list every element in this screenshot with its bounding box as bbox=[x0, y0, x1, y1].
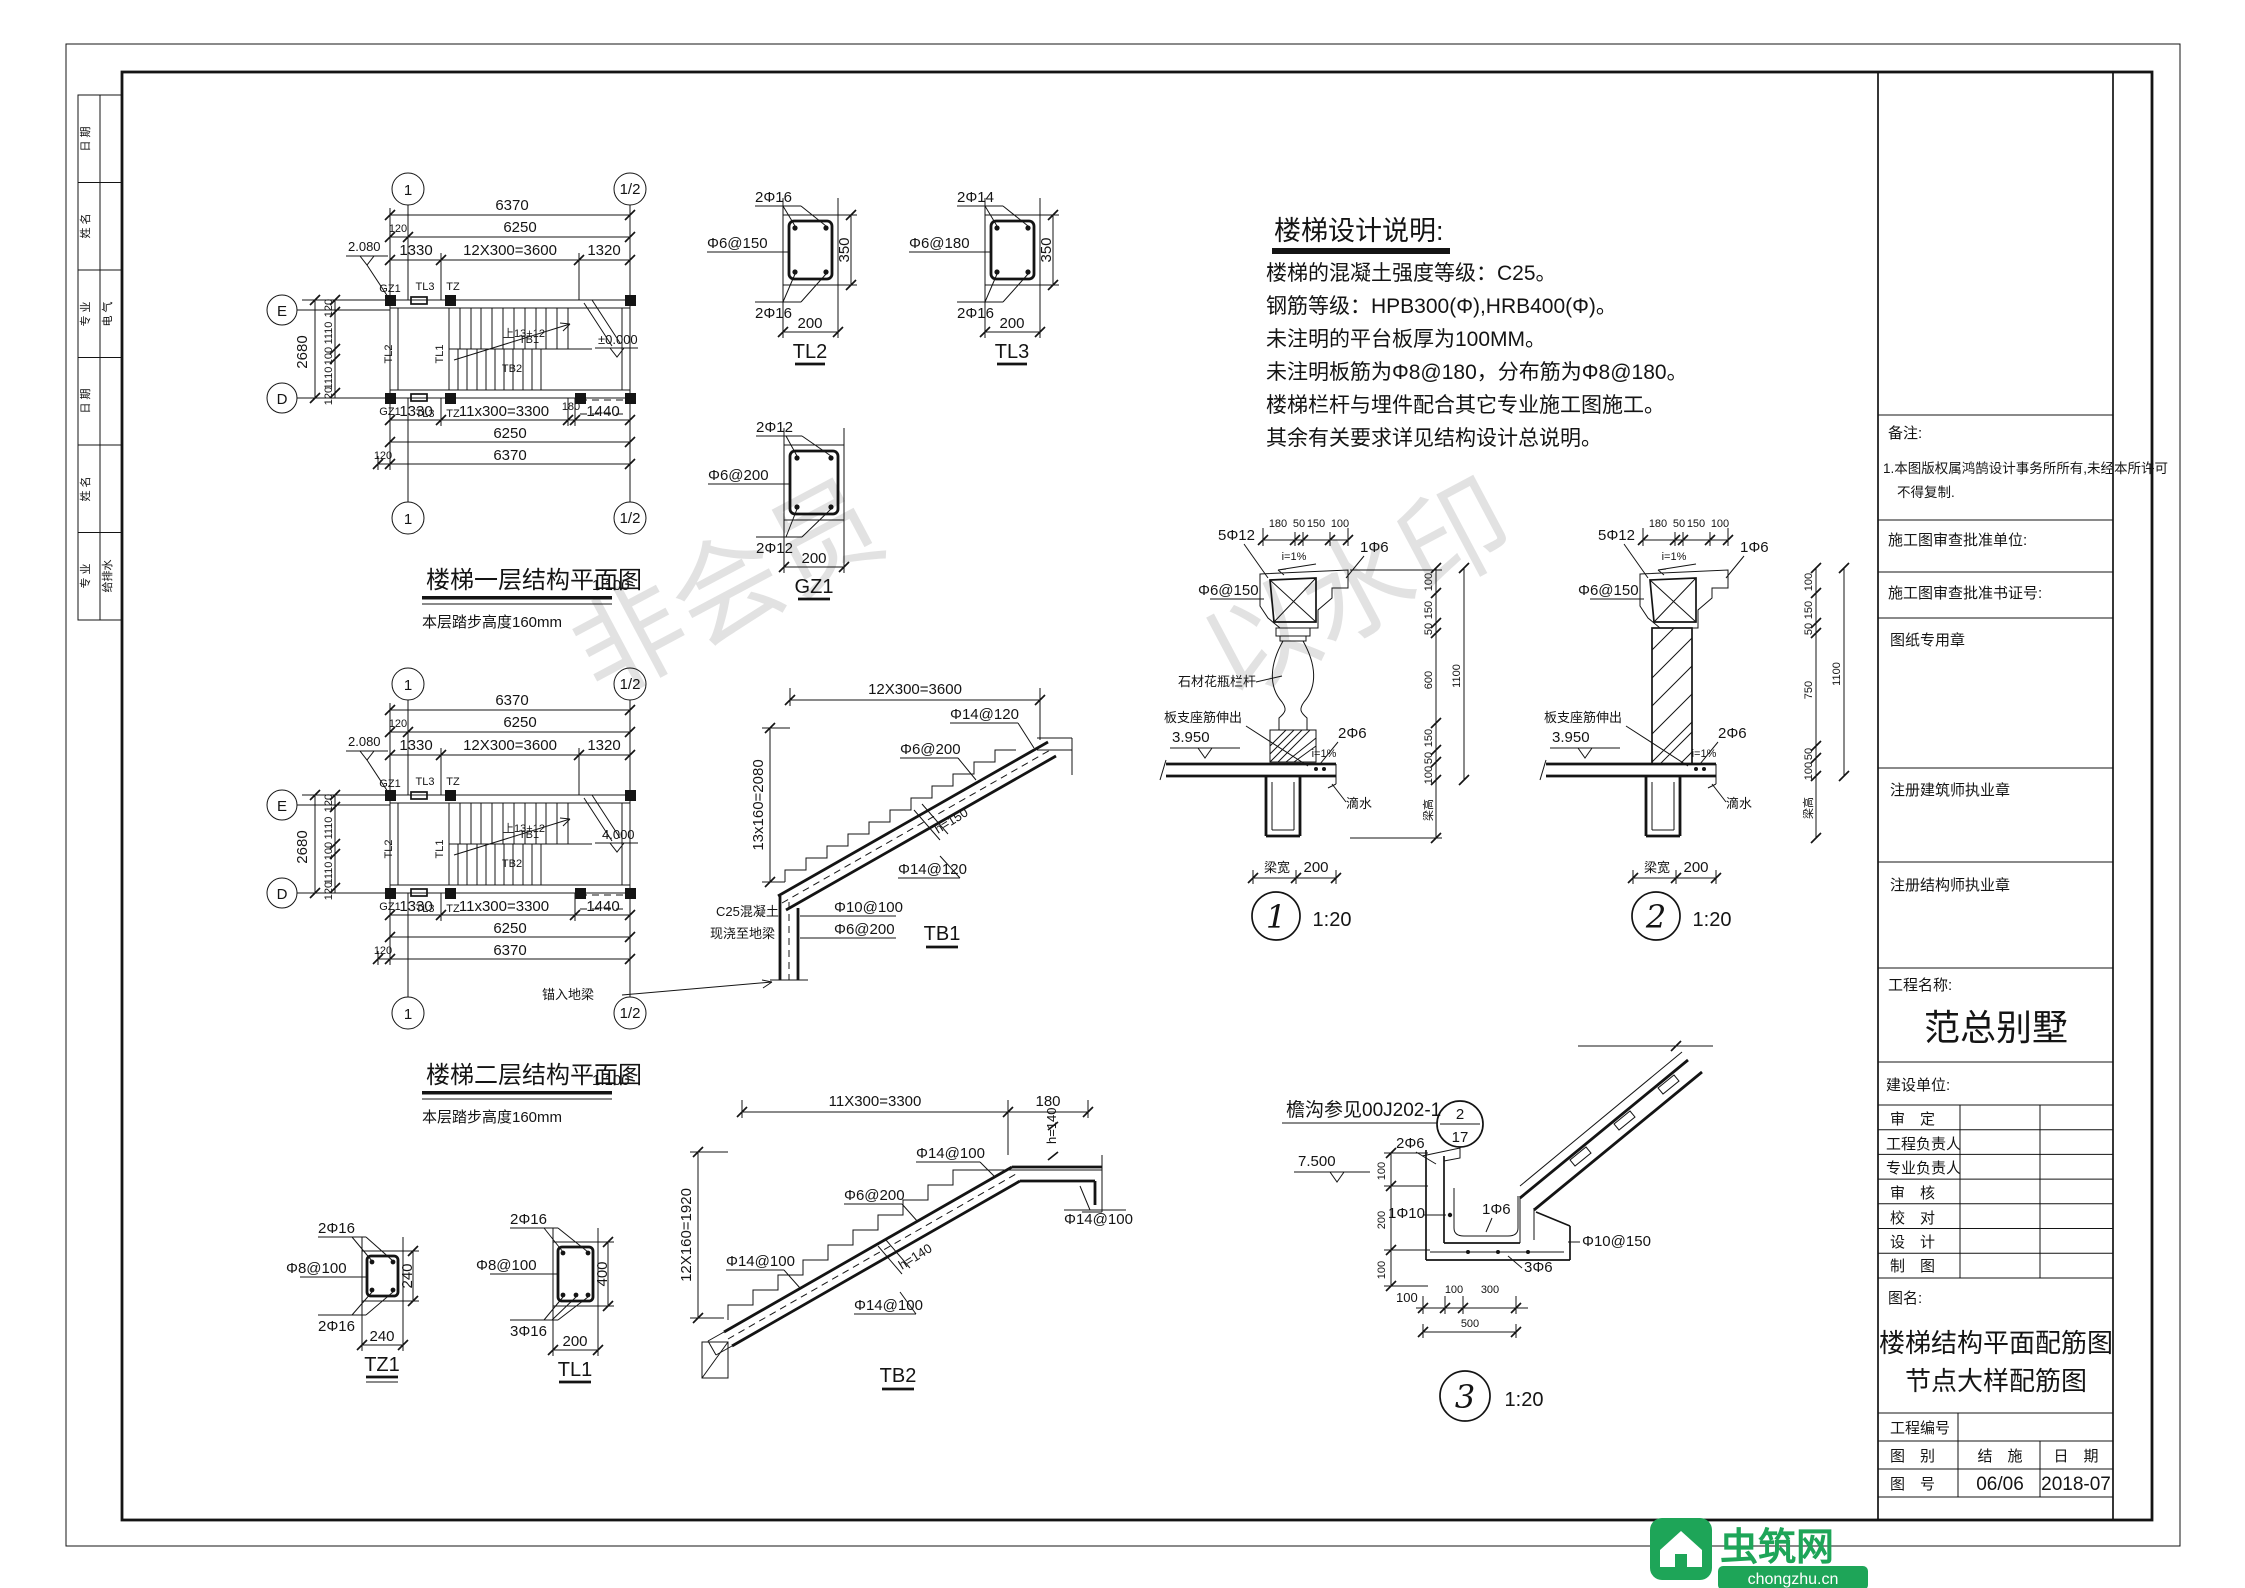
svg-text:50: 50 bbox=[1423, 752, 1435, 764]
svg-text:50: 50 bbox=[1803, 748, 1815, 760]
svg-text:注册结构师执业章: 注册结构师执业章 bbox=[1890, 876, 2010, 894]
svg-text:2680: 2680 bbox=[294, 335, 311, 368]
svg-text:120: 120 bbox=[323, 299, 335, 317]
svg-text:1110: 1110 bbox=[323, 367, 335, 390]
svg-text:TL3: TL3 bbox=[416, 776, 435, 788]
svg-text:设 计: 设 计 bbox=[1890, 1234, 1935, 1251]
svg-text:100: 100 bbox=[1423, 573, 1435, 591]
svg-text:2Φ16: 2Φ16 bbox=[755, 189, 792, 206]
svg-text:5Φ12: 5Φ12 bbox=[1598, 527, 1635, 544]
svg-text:1330: 1330 bbox=[399, 403, 432, 420]
level-mark: 4.000 bbox=[602, 827, 635, 842]
svg-text:1/2: 1/2 bbox=[620, 676, 641, 693]
svg-text:Φ14@100: Φ14@100 bbox=[1064, 1211, 1133, 1228]
svg-text:D: D bbox=[277, 886, 288, 903]
svg-text:2Φ6: 2Φ6 bbox=[1396, 1135, 1425, 1152]
svg-text:Φ14@120: Φ14@120 bbox=[950, 706, 1019, 723]
svg-text:100: 100 bbox=[1445, 1284, 1463, 1296]
svg-text:12X160=1920: 12X160=1920 bbox=[678, 1188, 695, 1282]
svg-text:2Φ6: 2Φ6 bbox=[1338, 725, 1367, 742]
drawing-sheet: 非会员 以水印 日 期 姓 名 专 业 电 气 日 期 姓 名 专 业 给排水 … bbox=[0, 0, 2245, 1588]
svg-text:2Φ6: 2Φ6 bbox=[1718, 725, 1747, 742]
svg-text:2Φ16: 2Φ16 bbox=[510, 1211, 547, 1228]
svg-text:600: 600 bbox=[1423, 671, 1435, 689]
svg-text:1330: 1330 bbox=[399, 242, 432, 259]
svg-text:梁高: 梁高 bbox=[1801, 797, 1815, 819]
left-signature-strip: 日 期 姓 名 专 业 电 气 日 期 姓 名 专 业 给排水 bbox=[78, 95, 122, 620]
svg-text:6370: 6370 bbox=[495, 692, 528, 709]
svg-text:楼梯栏杆与埋件配合其它专业施工图施工。: 楼梯栏杆与埋件配合其它专业施工图施工。 bbox=[1266, 394, 1665, 417]
svg-text:1: 1 bbox=[404, 677, 412, 694]
svg-text:Φ6@200: Φ6@200 bbox=[844, 1187, 905, 1204]
svg-text:6370: 6370 bbox=[493, 942, 526, 959]
svg-text:200: 200 bbox=[1303, 859, 1328, 876]
svg-text:11x300=3300: 11x300=3300 bbox=[459, 898, 549, 915]
svg-text:1Φ6: 1Φ6 bbox=[1482, 1201, 1511, 1218]
figure-name-label: 图名: bbox=[1888, 1290, 1922, 1307]
svg-text:1320: 1320 bbox=[587, 242, 620, 259]
svg-text:1100: 1100 bbox=[1831, 662, 1843, 686]
svg-text:120: 120 bbox=[374, 450, 392, 462]
svg-text:TL2: TL2 bbox=[383, 345, 395, 364]
figure-name-1: 楼梯结构平面配筋图 bbox=[1879, 1328, 2113, 1358]
title-block: 备注: 1.本图版权属鸿鹄设计事务所所有,未经本所许可 不得复制. 施工图审查批… bbox=[1878, 415, 2168, 1497]
svg-text:审 核: 审 核 bbox=[1890, 1185, 1935, 1202]
plan-subtitle: 本层踏步高度160mm bbox=[422, 614, 562, 631]
svg-text:审 定: 审 定 bbox=[1890, 1111, 1935, 1128]
svg-text:100: 100 bbox=[323, 347, 335, 365]
svg-text:Φ8@100: Φ8@100 bbox=[476, 1257, 537, 1274]
detail-number: 2 bbox=[1645, 898, 1666, 936]
svg-text:6250: 6250 bbox=[493, 425, 526, 442]
svg-text:施工图审查批准书证号:: 施工图审查批准书证号: bbox=[1888, 585, 2042, 602]
svg-text:2Φ12: 2Φ12 bbox=[756, 419, 793, 436]
svg-text:180: 180 bbox=[1269, 518, 1287, 530]
svg-text:1.本图版权属鸿鹄设计事务所所有,未经本所许可: 1.本图版权属鸿鹄设计事务所所有,未经本所许可 bbox=[1883, 460, 2168, 476]
svg-text:E: E bbox=[277, 303, 287, 320]
svg-text:板支座筋伸出: 板支座筋伸出 bbox=[1544, 710, 1622, 725]
detail-number: 1 bbox=[1266, 898, 1286, 936]
section-tl3: 2Φ14 Φ6@180 350 2Φ16 200 TL3 bbox=[909, 189, 1059, 364]
svg-text:Φ6@150: Φ6@150 bbox=[707, 235, 768, 252]
svg-text:200: 200 bbox=[1683, 859, 1708, 876]
section-tl2: 2Φ16 Φ6@150 350 2Φ16 200 TL2 bbox=[707, 189, 857, 364]
svg-text:2Φ16: 2Φ16 bbox=[755, 305, 792, 322]
svg-text:1:20: 1:20 bbox=[1313, 909, 1352, 931]
svg-text:100: 100 bbox=[1331, 518, 1349, 530]
notes-title: 楼梯设计说明: bbox=[1274, 216, 1444, 246]
svg-text:1330: 1330 bbox=[399, 737, 432, 754]
logo-site-url: chongzhu.cn bbox=[1748, 1571, 1839, 1588]
elevation-mark: 2.080 bbox=[348, 239, 381, 254]
remark-label: 备注: bbox=[1888, 425, 1922, 442]
chongzhu-watermark-logo: 虫筑网 chongzhu.cn bbox=[1650, 1518, 1868, 1588]
logo-site-name: 虫筑网 bbox=[1720, 1527, 1834, 1569]
svg-text:500: 500 bbox=[1461, 1318, 1479, 1330]
svg-text:50: 50 bbox=[1293, 518, 1305, 530]
svg-text:Φ10@150: Φ10@150 bbox=[1582, 1233, 1651, 1250]
section-tz1: 2Φ16 Φ8@100 240 2Φ16 240 TZ1 bbox=[286, 1220, 419, 1382]
svg-text:TB1: TB1 bbox=[519, 829, 539, 841]
svg-text:TB2: TB2 bbox=[502, 858, 522, 870]
svg-text:工程编号: 工程编号 bbox=[1890, 1420, 1950, 1437]
svg-text:150: 150 bbox=[1687, 518, 1705, 530]
svg-text:200: 200 bbox=[562, 1333, 587, 1350]
svg-text:200: 200 bbox=[801, 550, 826, 567]
svg-text:1:100: 1:100 bbox=[592, 577, 630, 594]
svg-text:6250: 6250 bbox=[503, 219, 536, 236]
svg-text:TL2: TL2 bbox=[383, 840, 395, 859]
svg-text:50: 50 bbox=[1423, 623, 1435, 635]
svg-text:100: 100 bbox=[1376, 1162, 1388, 1180]
svg-text:现浇至地梁: 现浇至地梁 bbox=[710, 926, 775, 941]
svg-text:1110: 1110 bbox=[323, 862, 335, 885]
svg-text:日 期: 日 期 bbox=[79, 388, 92, 413]
svg-text:100: 100 bbox=[1803, 573, 1815, 591]
svg-text:120: 120 bbox=[323, 882, 335, 900]
section-name: TL1 bbox=[558, 1359, 592, 1381]
svg-text:锚入地梁: 锚入地梁 bbox=[542, 987, 594, 1002]
svg-text:E: E bbox=[277, 798, 287, 815]
svg-text:结 施: 结 施 bbox=[1977, 1448, 2022, 1465]
svg-text:3Φ6: 3Φ6 bbox=[1524, 1259, 1553, 1276]
level-mark: ±0.000 bbox=[598, 332, 638, 347]
svg-text:C25混凝土: C25混凝土 bbox=[716, 904, 779, 919]
svg-text:Φ6@150: Φ6@150 bbox=[1198, 582, 1259, 599]
svg-text:注册建筑师执业章: 注册建筑师执业章 bbox=[1890, 781, 2010, 799]
svg-text:100: 100 bbox=[1396, 1290, 1418, 1305]
svg-text:GZ1: GZ1 bbox=[379, 283, 400, 295]
svg-text:日 期: 日 期 bbox=[2053, 1448, 2098, 1465]
svg-text:工程负责人: 工程负责人 bbox=[1886, 1136, 1961, 1153]
svg-text:i=1%: i=1% bbox=[1692, 748, 1717, 760]
svg-text:日 期: 日 期 bbox=[79, 126, 92, 151]
svg-text:1: 1 bbox=[404, 511, 412, 528]
svg-text:120: 120 bbox=[323, 387, 335, 405]
svg-text:120: 120 bbox=[389, 223, 407, 235]
svg-text:Φ6@200: Φ6@200 bbox=[834, 921, 895, 938]
svg-text:120: 120 bbox=[323, 794, 335, 812]
stair-design-notes: 楼梯设计说明: 楼梯的混凝土强度等级：C25。 钢筋等级：HPB300(Φ),H… bbox=[1266, 216, 1688, 450]
svg-text:滴水: 滴水 bbox=[1346, 796, 1372, 811]
gutter-ref: 檐沟参见00J202-1 bbox=[1286, 1099, 1441, 1121]
svg-text:未注明的平台板厚为100MM。: 未注明的平台板厚为100MM。 bbox=[1266, 328, 1546, 351]
figure-name-2: 节点大样配筋图 bbox=[1905, 1366, 2087, 1396]
svg-text:400: 400 bbox=[594, 1261, 611, 1286]
svg-text:2Φ14: 2Φ14 bbox=[957, 189, 994, 206]
svg-text:180: 180 bbox=[1649, 518, 1667, 530]
svg-text:1/2: 1/2 bbox=[620, 1005, 641, 1022]
svg-text:1: 1 bbox=[404, 1006, 412, 1023]
svg-text:Φ6@200: Φ6@200 bbox=[708, 467, 769, 484]
section-name: TL2 bbox=[793, 341, 827, 363]
svg-text:图 号: 图 号 bbox=[1890, 1476, 1935, 1493]
svg-text:Φ8@100: Φ8@100 bbox=[286, 1260, 347, 1277]
svg-text:图纸专用章: 图纸专用章 bbox=[1890, 631, 1965, 649]
svg-text:1320: 1320 bbox=[587, 737, 620, 754]
svg-text:专业负责人: 专业负责人 bbox=[1886, 1160, 1961, 1177]
svg-text:6370: 6370 bbox=[495, 197, 528, 214]
svg-text:TB2: TB2 bbox=[502, 363, 522, 375]
svg-text:给排水: 给排水 bbox=[100, 560, 114, 593]
svg-text:GZ1: GZ1 bbox=[379, 778, 400, 790]
svg-text:不得复制.: 不得复制. bbox=[1897, 484, 1955, 500]
svg-text:TZ: TZ bbox=[446, 776, 460, 788]
svg-text:1Φ6: 1Φ6 bbox=[1360, 539, 1389, 556]
svg-text:1/2: 1/2 bbox=[620, 181, 641, 198]
plan-subtitle: 本层踏步高度160mm bbox=[422, 1109, 562, 1126]
plan-second-floor: 1 1/2 E D 1 1/2 6370 120 6250 1330 12X30… bbox=[267, 668, 646, 1126]
svg-text:D: D bbox=[277, 391, 288, 408]
svg-text:Φ14@100: Φ14@100 bbox=[916, 1145, 985, 1162]
svg-text:TZ: TZ bbox=[446, 281, 460, 293]
svg-text:100: 100 bbox=[1423, 766, 1435, 784]
watermark: 非会员 以水印 bbox=[554, 458, 1533, 722]
svg-text:6370: 6370 bbox=[493, 447, 526, 464]
project-name: 范总别墅 bbox=[1924, 1007, 2068, 1048]
svg-text:1:20: 1:20 bbox=[1693, 909, 1732, 931]
svg-text:图 别: 图 别 bbox=[1890, 1448, 1935, 1465]
sheet-number: 06/06 bbox=[1976, 1474, 2024, 1495]
detail-name: TB1 bbox=[924, 923, 961, 945]
svg-text:姓 名: 姓 名 bbox=[78, 213, 92, 238]
svg-text:建设单位:: 建设单位: bbox=[1886, 1077, 1950, 1094]
svg-text:6250: 6250 bbox=[493, 920, 526, 937]
svg-text:Φ6@150: Φ6@150 bbox=[1578, 582, 1639, 599]
svg-text:i=1%: i=1% bbox=[1282, 551, 1307, 563]
svg-text:2Φ12: 2Φ12 bbox=[756, 540, 793, 557]
svg-text:150: 150 bbox=[1423, 729, 1435, 747]
detail-tb2: 11X300=3300 180 h=140 12X160=1920 Φ14@10… bbox=[678, 1093, 1133, 1389]
svg-text:专 业: 专 业 bbox=[78, 301, 92, 326]
svg-text:滴水: 滴水 bbox=[1726, 796, 1752, 811]
svg-text:11x300=3300: 11x300=3300 bbox=[459, 403, 549, 420]
svg-text:Φ14@100: Φ14@100 bbox=[726, 1253, 795, 1270]
svg-text:TL1: TL1 bbox=[434, 345, 446, 364]
svg-text:石材花瓶栏杆: 石材花瓶栏杆 bbox=[1178, 674, 1256, 689]
svg-text:50: 50 bbox=[1803, 623, 1815, 635]
svg-text:3Φ16: 3Φ16 bbox=[510, 1323, 547, 1340]
svg-text:200: 200 bbox=[797, 315, 822, 332]
section-name: TZ1 bbox=[364, 1354, 400, 1376]
svg-text:200: 200 bbox=[1376, 1211, 1388, 1229]
svg-text:钢筋等级：HPB300(Φ),HRB400(Φ)。: 钢筋等级：HPB300(Φ),HRB400(Φ)。 bbox=[1266, 295, 1617, 318]
svg-text:板支座筋伸出: 板支座筋伸出 bbox=[1164, 710, 1242, 725]
detail-number: 3 bbox=[1455, 1378, 1475, 1416]
svg-text:12X300=3600: 12X300=3600 bbox=[463, 737, 557, 754]
svg-text:12X300=3600: 12X300=3600 bbox=[868, 681, 962, 698]
svg-text:2680: 2680 bbox=[294, 830, 311, 863]
svg-text:TB1: TB1 bbox=[519, 334, 539, 346]
section-tl1: 2Φ16 Φ8@100 400 3Φ16 200 TL1 bbox=[476, 1211, 614, 1382]
svg-text:12X300=3600: 12X300=3600 bbox=[463, 242, 557, 259]
svg-text:TL1: TL1 bbox=[434, 840, 446, 859]
svg-text:100: 100 bbox=[323, 842, 335, 860]
svg-text:150: 150 bbox=[1423, 601, 1435, 619]
svg-text:未注明板筋为Φ8@180，分布筋为Φ8@180。: 未注明板筋为Φ8@180，分布筋为Φ8@180。 bbox=[1266, 361, 1688, 384]
svg-text:150: 150 bbox=[1307, 518, 1325, 530]
svg-text:h=150: h=150 bbox=[932, 804, 971, 836]
svg-text:电 气: 电 气 bbox=[100, 301, 114, 326]
detail-3-gutter: 檐沟参见00J202-1 2 17 7.500 100 200 100 2Φ6 … bbox=[1282, 1041, 1713, 1421]
svg-text:1:100: 1:100 bbox=[592, 1072, 630, 1089]
svg-text:h=140: h=140 bbox=[896, 1240, 935, 1272]
svg-text:1440: 1440 bbox=[586, 898, 619, 915]
sheet-date: 2018-07 bbox=[2041, 1474, 2111, 1495]
svg-text:100: 100 bbox=[1803, 762, 1815, 780]
svg-text:1440: 1440 bbox=[586, 403, 619, 420]
svg-text:120: 120 bbox=[389, 718, 407, 730]
svg-text:1100: 1100 bbox=[1451, 664, 1463, 688]
svg-text:11X300=3300: 11X300=3300 bbox=[829, 1093, 922, 1110]
svg-text:TL3: TL3 bbox=[416, 281, 435, 293]
svg-text:专 业: 专 业 bbox=[78, 563, 92, 588]
svg-text:i=1%: i=1% bbox=[1312, 748, 1337, 760]
cad-canvas: 非会员 以水印 日 期 姓 名 专 业 电 气 日 期 姓 名 专 业 给排水 … bbox=[0, 0, 2245, 1588]
svg-text:姓 名: 姓 名 bbox=[78, 476, 92, 501]
svg-text:1Φ10: 1Φ10 bbox=[1388, 1205, 1425, 1222]
svg-text:Φ6@180: Φ6@180 bbox=[909, 235, 970, 252]
plan-first-floor: 1 1/2 E D 1 1/2 6370 120 6250 1330 12X30… bbox=[267, 173, 646, 631]
svg-text:180: 180 bbox=[1035, 1093, 1060, 1110]
svg-text:13x160=2080: 13x160=2080 bbox=[750, 759, 767, 850]
elevation-mark: 2.080 bbox=[348, 734, 381, 749]
svg-text:梁宽: 梁宽 bbox=[1264, 860, 1290, 875]
svg-text:240: 240 bbox=[369, 1328, 394, 1345]
svg-text:150: 150 bbox=[1803, 601, 1815, 619]
svg-text:350: 350 bbox=[1038, 237, 1055, 262]
svg-text:1: 1 bbox=[404, 182, 412, 199]
svg-text:Φ10@100: Φ10@100 bbox=[834, 899, 903, 916]
svg-text:施工图审查批准单位:: 施工图审查批准单位: bbox=[1888, 532, 2027, 549]
svg-text:1110: 1110 bbox=[323, 817, 335, 840]
svg-text:梁宽: 梁宽 bbox=[1644, 860, 1670, 875]
svg-text:6250: 6250 bbox=[503, 714, 536, 731]
svg-text:2Φ16: 2Φ16 bbox=[957, 305, 994, 322]
elevation-mark: 3.950 bbox=[1172, 729, 1210, 746]
svg-text:1/2: 1/2 bbox=[620, 510, 641, 527]
project-name-label: 工程名称: bbox=[1888, 977, 1952, 994]
svg-text:2Φ16: 2Φ16 bbox=[318, 1318, 355, 1335]
svg-text:50: 50 bbox=[1673, 518, 1685, 530]
svg-text:100: 100 bbox=[1376, 1261, 1388, 1279]
svg-text:制 图: 制 图 bbox=[1890, 1258, 1935, 1275]
svg-text:其余有关要求详见结构设计总说明。: 其余有关要求详见结构设计总说明。 bbox=[1266, 427, 1602, 450]
svg-text:2: 2 bbox=[1456, 1106, 1464, 1123]
svg-text:h=140: h=140 bbox=[1044, 1107, 1059, 1144]
svg-text:120: 120 bbox=[374, 945, 392, 957]
svg-text:750: 750 bbox=[1803, 681, 1815, 699]
svg-text:Φ6@200: Φ6@200 bbox=[900, 741, 961, 758]
section-name: TL3 bbox=[995, 341, 1029, 363]
svg-text:1:20: 1:20 bbox=[1505, 1389, 1544, 1411]
elevation-mark: 3.950 bbox=[1552, 729, 1590, 746]
svg-text:1Φ6: 1Φ6 bbox=[1740, 539, 1769, 556]
detail-2-parapet: 180 50 150 100 5Φ12 i=1% 1Φ6 Φ6@150 板支座筋… bbox=[1540, 518, 1849, 940]
elevation-mark: 7.500 bbox=[1298, 1153, 1336, 1170]
svg-text:17: 17 bbox=[1452, 1129, 1469, 1146]
svg-text:240: 240 bbox=[399, 1263, 416, 1288]
section-name: GZ1 bbox=[795, 576, 834, 598]
svg-text:Φ14@100: Φ14@100 bbox=[854, 1297, 923, 1314]
svg-text:梁高: 梁高 bbox=[1421, 799, 1435, 821]
svg-text:2Φ16: 2Φ16 bbox=[318, 1220, 355, 1237]
svg-text:5Φ12: 5Φ12 bbox=[1218, 527, 1255, 544]
svg-text:1330: 1330 bbox=[399, 898, 432, 915]
detail-name: TB2 bbox=[880, 1365, 917, 1387]
svg-text:300: 300 bbox=[1481, 1284, 1499, 1296]
svg-text:1110: 1110 bbox=[323, 322, 335, 345]
svg-text:校 对: 校 对 bbox=[1890, 1210, 1935, 1227]
svg-text:350: 350 bbox=[836, 237, 853, 262]
svg-text:100: 100 bbox=[1711, 518, 1729, 530]
svg-text:200: 200 bbox=[999, 315, 1024, 332]
svg-text:楼梯的混凝土强度等级：C25。: 楼梯的混凝土强度等级：C25。 bbox=[1266, 262, 1557, 285]
svg-text:i=1%: i=1% bbox=[1662, 551, 1687, 563]
svg-text:180: 180 bbox=[562, 401, 580, 413]
svg-text:Φ14@120: Φ14@120 bbox=[898, 861, 967, 878]
